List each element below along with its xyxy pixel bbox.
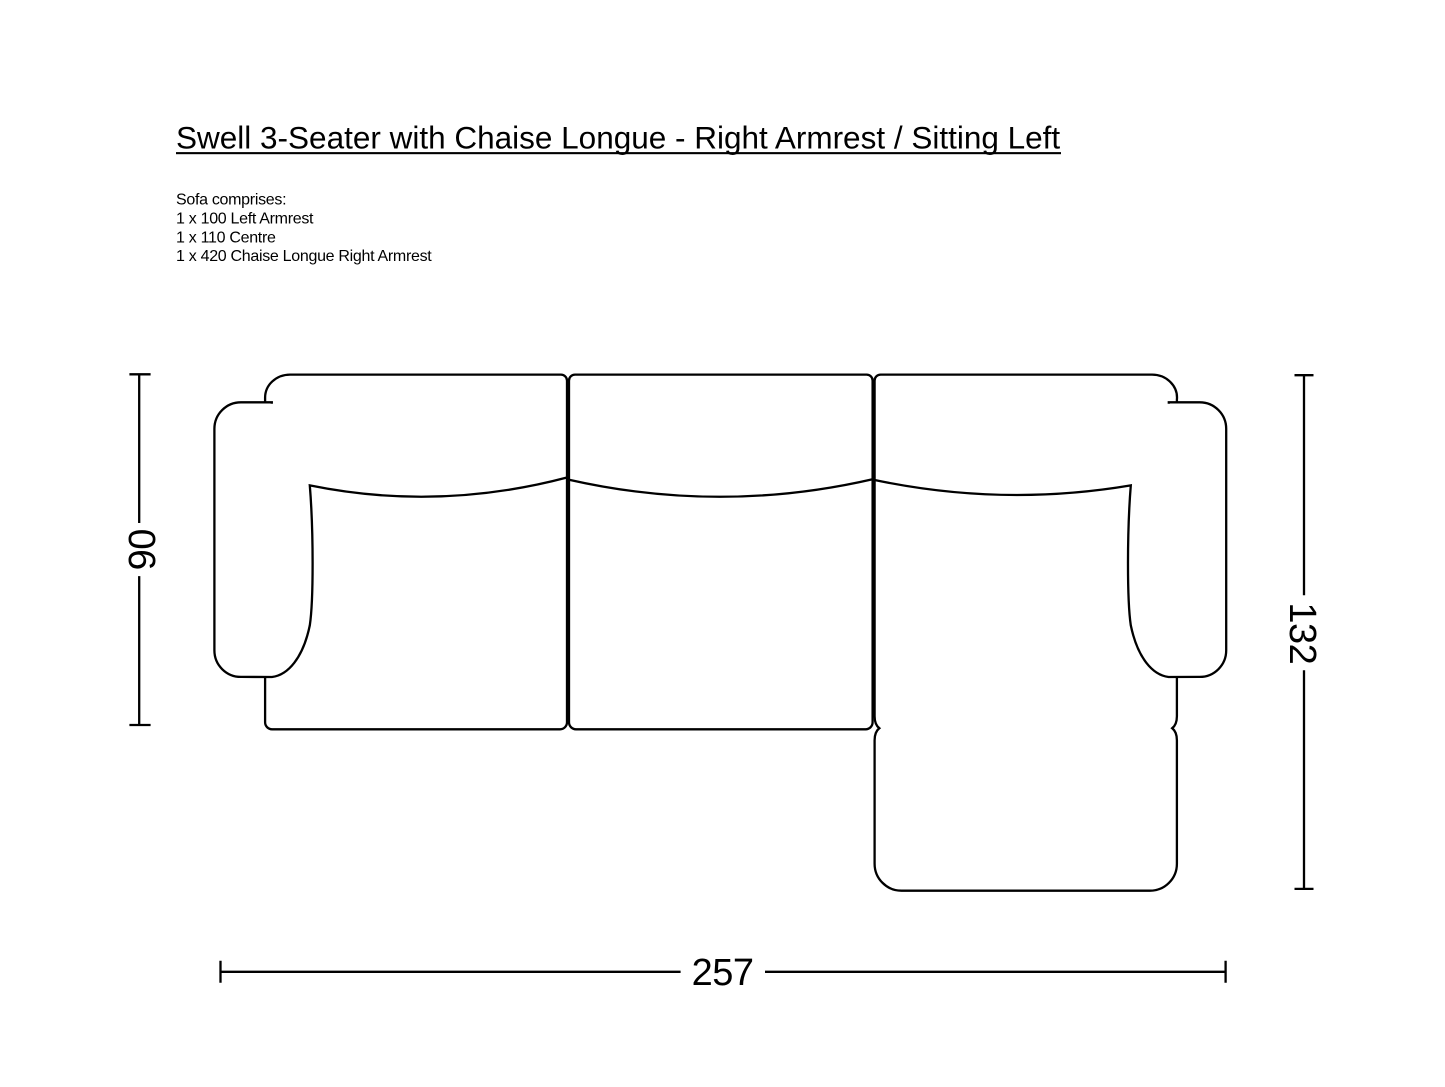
svg-text:Sofa comprises:: Sofa comprises:	[176, 192, 286, 209]
svg-text:132: 132	[1281, 602, 1323, 664]
svg-text:90: 90	[122, 529, 164, 570]
svg-text:Swell 3-Seater with Chaise Lon: Swell 3-Seater with Chaise Longue - Righ…	[176, 119, 1060, 155]
svg-text:1 x 420 Chaise Longue Right Ar: 1 x 420 Chaise Longue Right Armrest	[176, 248, 432, 265]
svg-text:1 x 100 Left Armrest: 1 x 100 Left Armrest	[176, 211, 314, 228]
svg-text:257: 257	[692, 952, 754, 994]
svg-text:1 x 110 Centre: 1 x 110 Centre	[176, 229, 276, 246]
